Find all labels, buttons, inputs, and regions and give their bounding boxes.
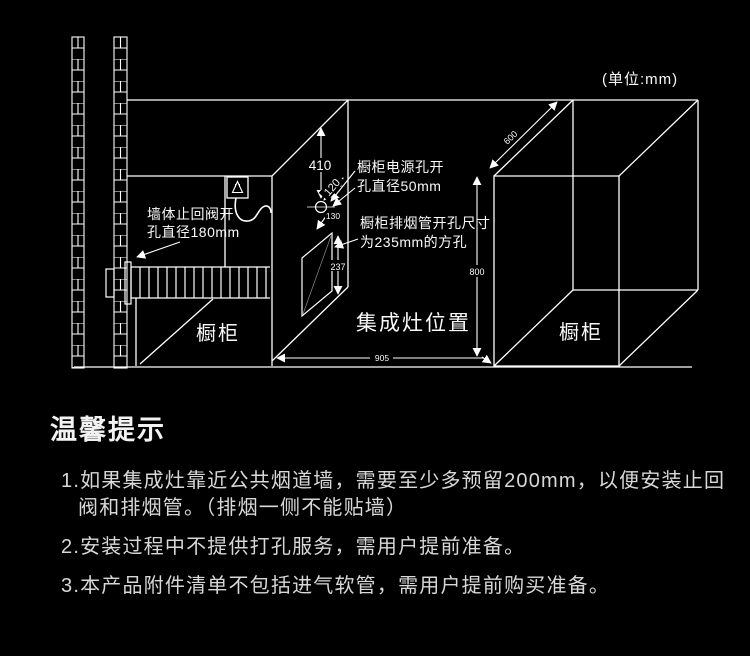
- power-hole-label-line2: 孔直径50mm: [357, 178, 441, 194]
- dim-130: 130: [326, 211, 340, 221]
- unit-note: (单位:mm): [602, 71, 678, 88]
- annotation-labels: (单位:mm) 墙体止回阀开 孔直径180mm 橱柜电源孔开 孔直径50mm 橱…: [147, 71, 678, 345]
- installation-diagram: 410 120 130 237 800 600 905 (单位:mm) 墙体止回…: [0, 0, 750, 410]
- power-hole-label-line1: 橱柜电源孔开: [357, 159, 444, 175]
- side-wall-panel: [272, 100, 348, 366]
- smoke-pipe-square-hole: [302, 233, 332, 316]
- dim-800: 800: [469, 267, 484, 277]
- dim-237: 237: [330, 262, 345, 272]
- right-cabinet-label: 橱柜: [559, 321, 603, 344]
- tips-title: 温馨提示: [50, 414, 732, 446]
- power-outlet-icon: [227, 177, 248, 198]
- tip-item-1: 1.如果集成灶靠近公共烟道墙，需要至少多预留200mm，以便安装止回 阀和排烟管…: [61, 468, 732, 522]
- dim-905: 905: [375, 353, 389, 363]
- wall-valve-label-line1: 墙体止回阀开: [147, 206, 234, 222]
- flue-wall-bricks: [72, 37, 127, 368]
- tip-1-line-1: 1.如果集成灶靠近公共烟道墙，需要至少多预留200mm，以便安装止回: [61, 468, 732, 495]
- tip-3-line-1: 3.本产品附件清单不包括进气软管，需用户提前购买准备。: [61, 573, 732, 600]
- tip-2-line-1: 2.安装过程中不提供打孔服务，需用户提前准备。: [61, 534, 732, 561]
- tips-section: 温馨提示 1.如果集成灶靠近公共烟道墙，需要至少多预留200mm，以便安装止回 …: [50, 414, 732, 612]
- dim-410: 410: [309, 158, 332, 173]
- tip-item-2: 2.安装过程中不提供打孔服务，需用户提前准备。: [61, 534, 732, 561]
- wall-valve-label-line2: 孔直径180mm: [147, 224, 240, 240]
- tip-1-line-2: 阀和排烟管。（排烟一侧不能贴墙）: [78, 495, 732, 522]
- exhaust-duct: [106, 262, 270, 304]
- smoke-hole-label-line2: 为235mm的方孔: [360, 234, 467, 250]
- smoke-hole-label-line1: 橱柜排烟管开孔尺寸: [360, 215, 491, 231]
- stove-position-label: 集成灶位置: [356, 312, 471, 335]
- outlet-cord: [235, 198, 271, 221]
- tip-item-3: 3.本产品附件清单不包括进气软管，需用户提前购买准备。: [61, 573, 732, 600]
- left-cabinet-label: 橱柜: [196, 322, 240, 345]
